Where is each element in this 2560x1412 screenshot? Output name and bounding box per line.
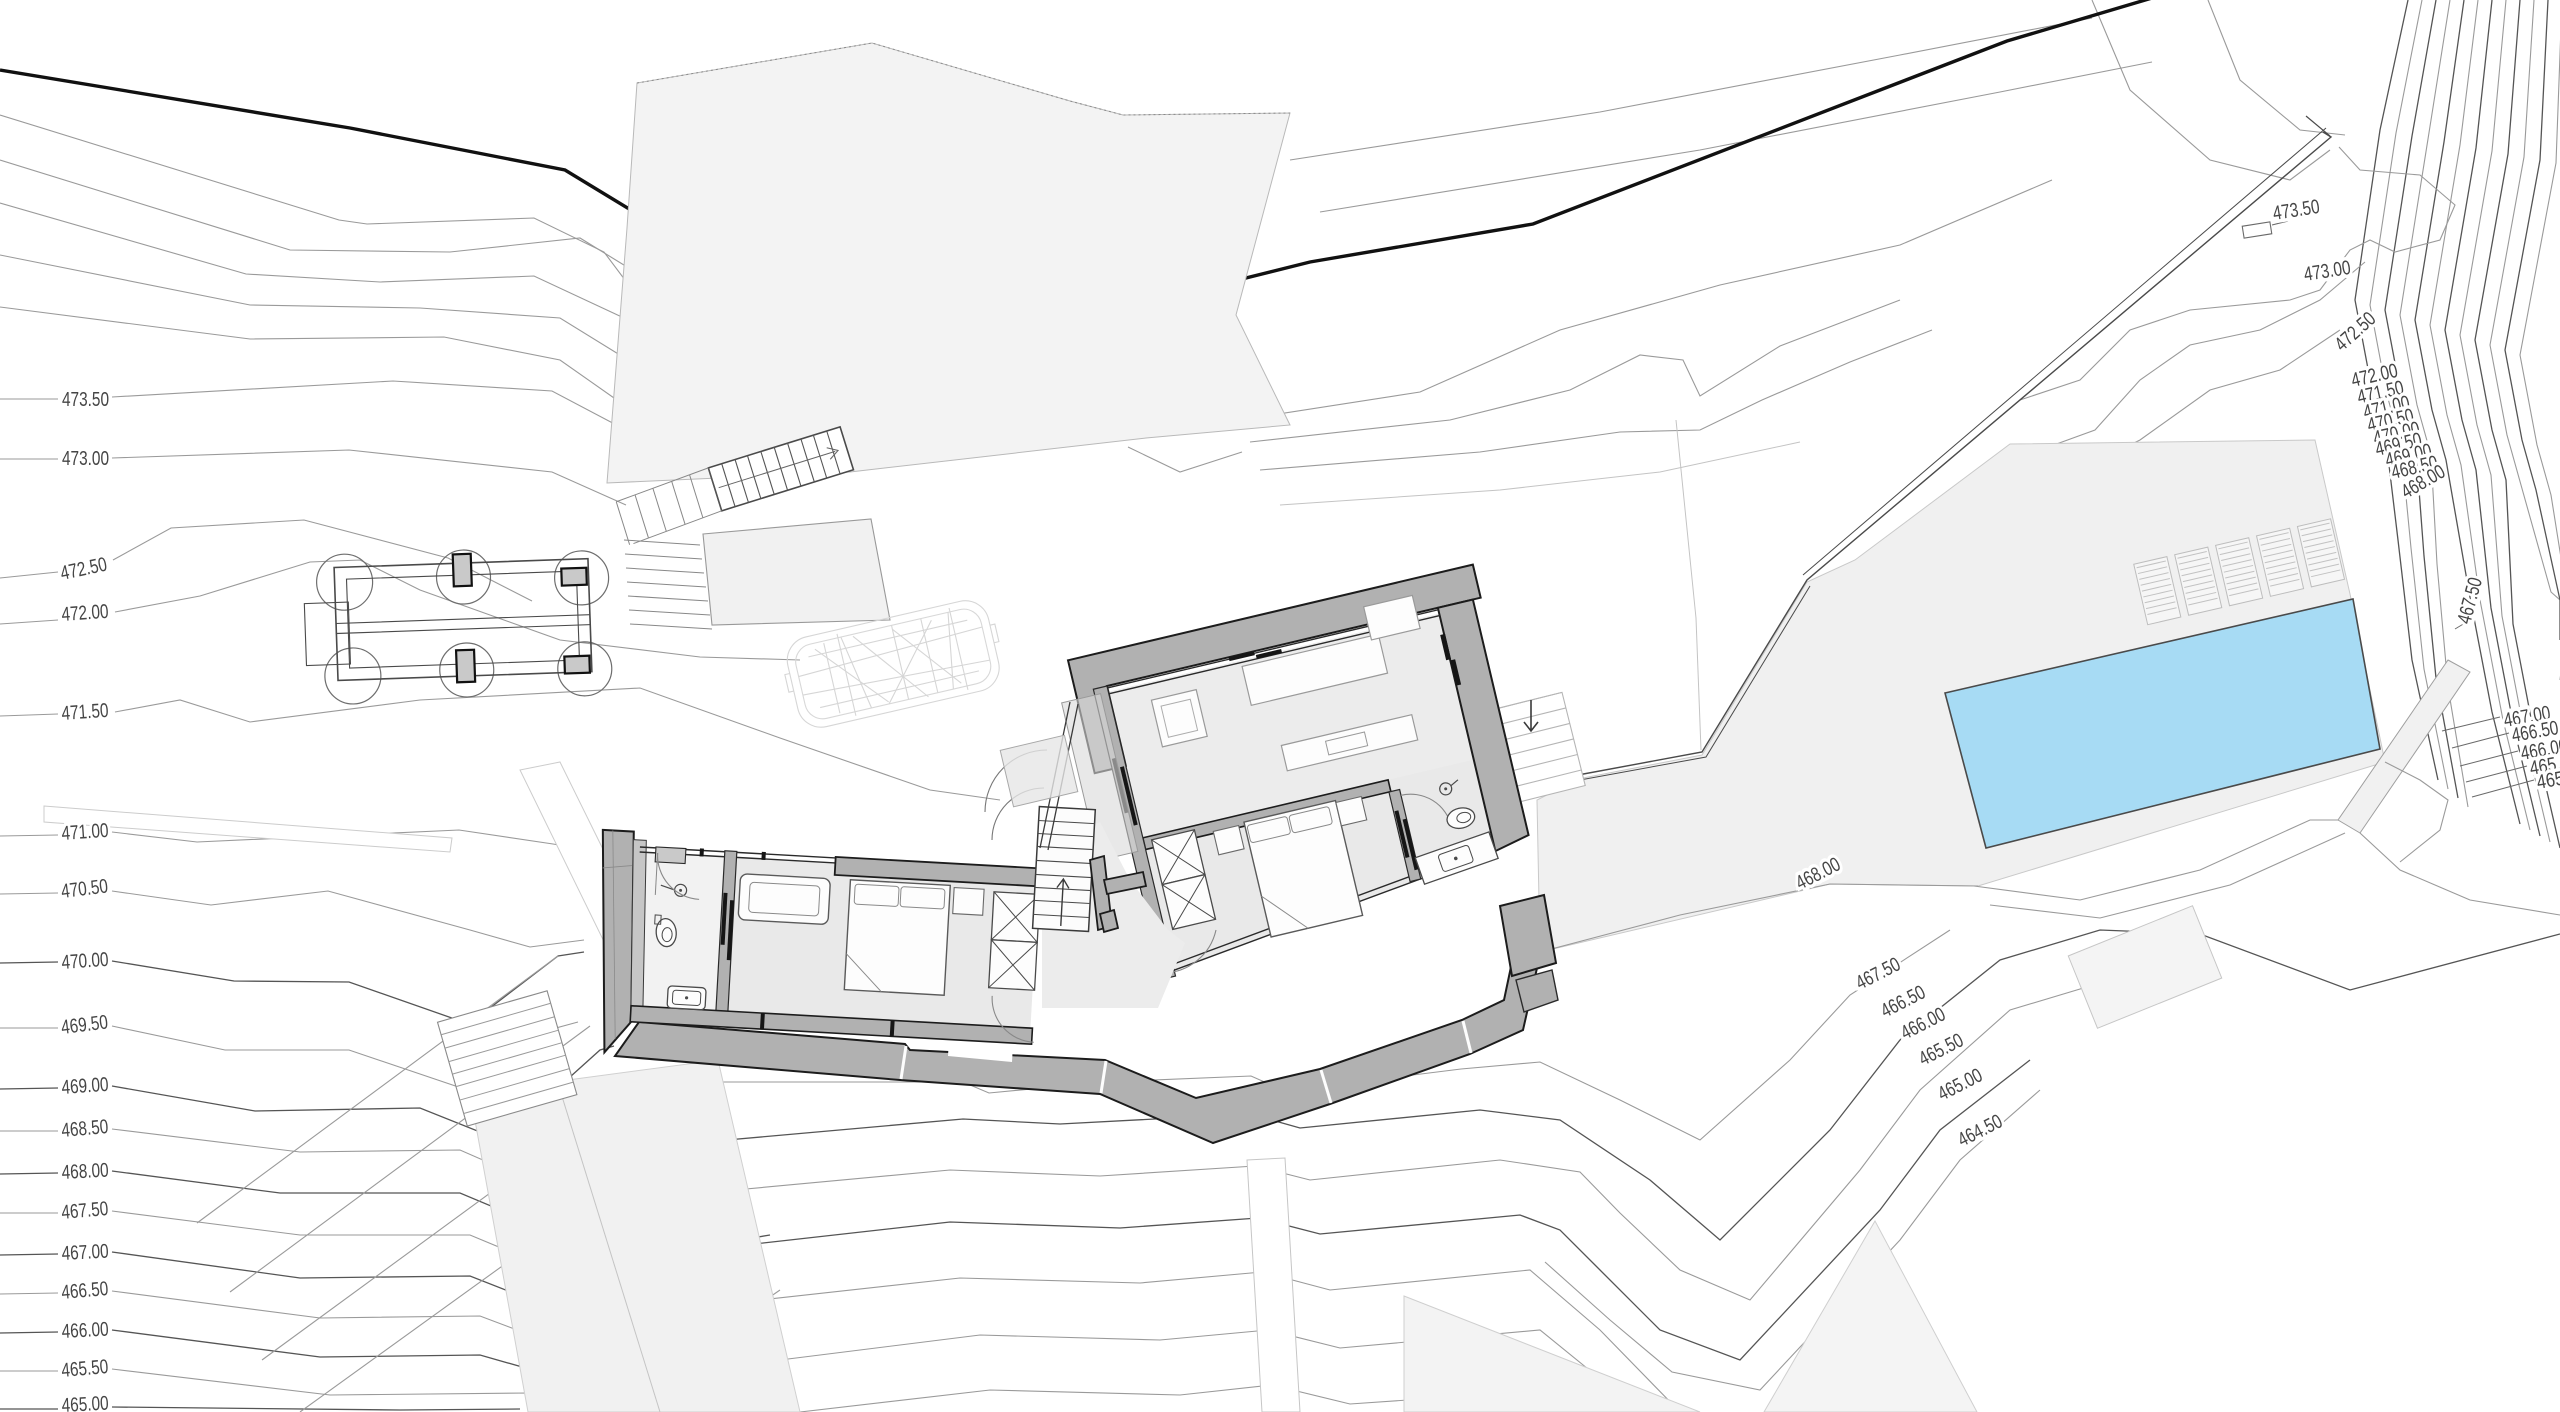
svg-text:465.00: 465.00 (61, 1393, 109, 1412)
svg-text:471.00: 471.00 (61, 820, 109, 845)
svg-text:465.: 465. (2535, 767, 2560, 794)
svg-text:469.00: 469.00 (61, 1074, 109, 1099)
svg-text:468.50: 468.50 (61, 1116, 110, 1142)
svg-text:471.50: 471.50 (61, 700, 109, 725)
svg-text:473.50: 473.50 (62, 389, 109, 411)
svg-text:466.50: 466.50 (61, 1278, 110, 1304)
svg-text:466.00: 466.00 (61, 1319, 109, 1343)
svg-text:472.00: 472.00 (61, 601, 109, 626)
svg-text:465.50: 465.50 (61, 1356, 110, 1382)
svg-text:467.00: 467.00 (61, 1241, 109, 1265)
svg-text:467.50: 467.50 (61, 1198, 110, 1224)
svg-text:473.00: 473.00 (62, 448, 109, 470)
svg-text:470.00: 470.00 (61, 949, 109, 974)
svg-text:468.00: 468.00 (61, 1160, 109, 1184)
